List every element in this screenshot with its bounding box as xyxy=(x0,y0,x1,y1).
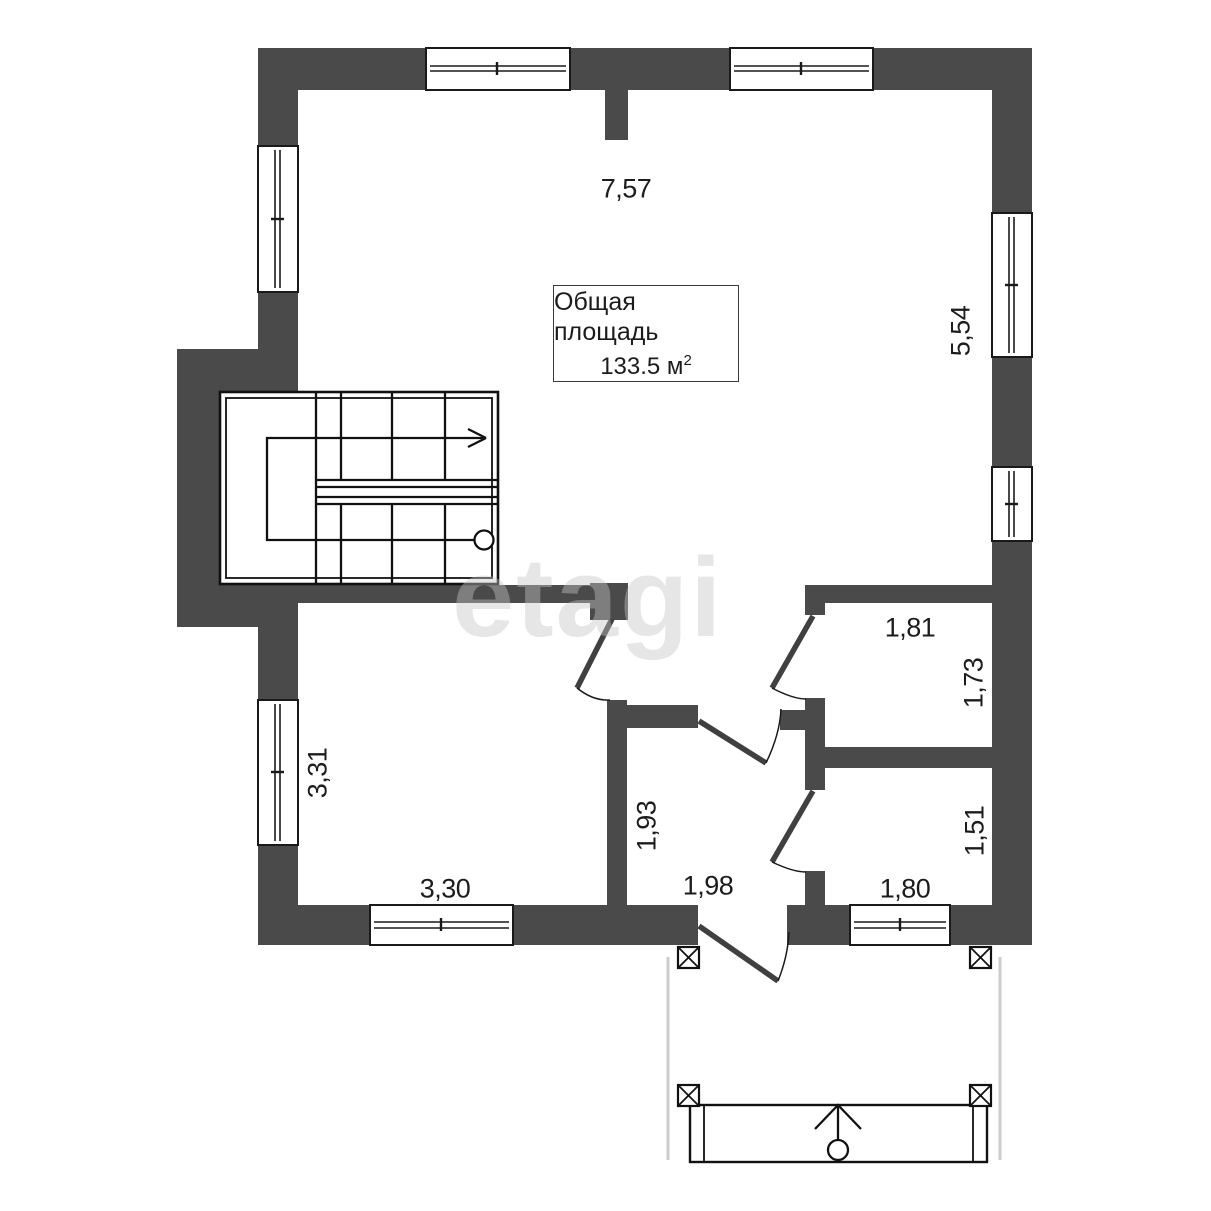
porch-post-bottom-left xyxy=(678,1085,699,1106)
window-right-lower xyxy=(992,467,1032,541)
dimension-hall-height: 1,93 xyxy=(632,801,663,852)
porch-post-bottom-right xyxy=(970,1085,991,1106)
door-hall-top xyxy=(699,709,781,763)
window-left-lower xyxy=(258,700,298,845)
window-top-left xyxy=(426,48,570,90)
porch xyxy=(668,947,1000,1162)
dimension-right-height: 5,54 xyxy=(946,306,977,357)
porch-post-top-left xyxy=(678,947,699,968)
window-left-upper xyxy=(258,146,298,292)
window-top-right xyxy=(730,48,873,90)
dimension-bath-width: 1,81 xyxy=(885,613,936,644)
dimension-hall-width: 1,98 xyxy=(683,871,734,902)
dimension-room-right-height: 1,51 xyxy=(960,806,991,857)
dimension-bath-height: 1,73 xyxy=(959,658,990,709)
total-area-box: Общая площадь 133.5 м2 xyxy=(553,285,739,382)
staircase xyxy=(220,392,498,584)
entrance-opening xyxy=(698,903,787,947)
dimension-room-left-height: 3,31 xyxy=(303,748,334,799)
dimension-room-right-width: 1,80 xyxy=(880,874,931,905)
porch-post-top-right xyxy=(970,947,991,968)
window-bottom-left xyxy=(370,905,513,945)
floor-plan: 7,57 5,54 1,81 1,73 3,31 1,93 1,98 1,51 … xyxy=(0,0,1211,1211)
total-area-value: 133.5 м2 xyxy=(600,347,692,381)
door-room-right xyxy=(772,791,813,872)
dimension-room-left-width: 3,30 xyxy=(420,874,471,905)
total-area-title: Общая площадь xyxy=(554,287,738,347)
window-bottom-right xyxy=(850,905,950,945)
stair-start-circle xyxy=(475,531,494,550)
dimension-top-width: 7,57 xyxy=(601,174,652,205)
window-right-upper xyxy=(992,213,1032,357)
door-room-left xyxy=(577,619,612,700)
door-bathroom xyxy=(772,616,813,699)
